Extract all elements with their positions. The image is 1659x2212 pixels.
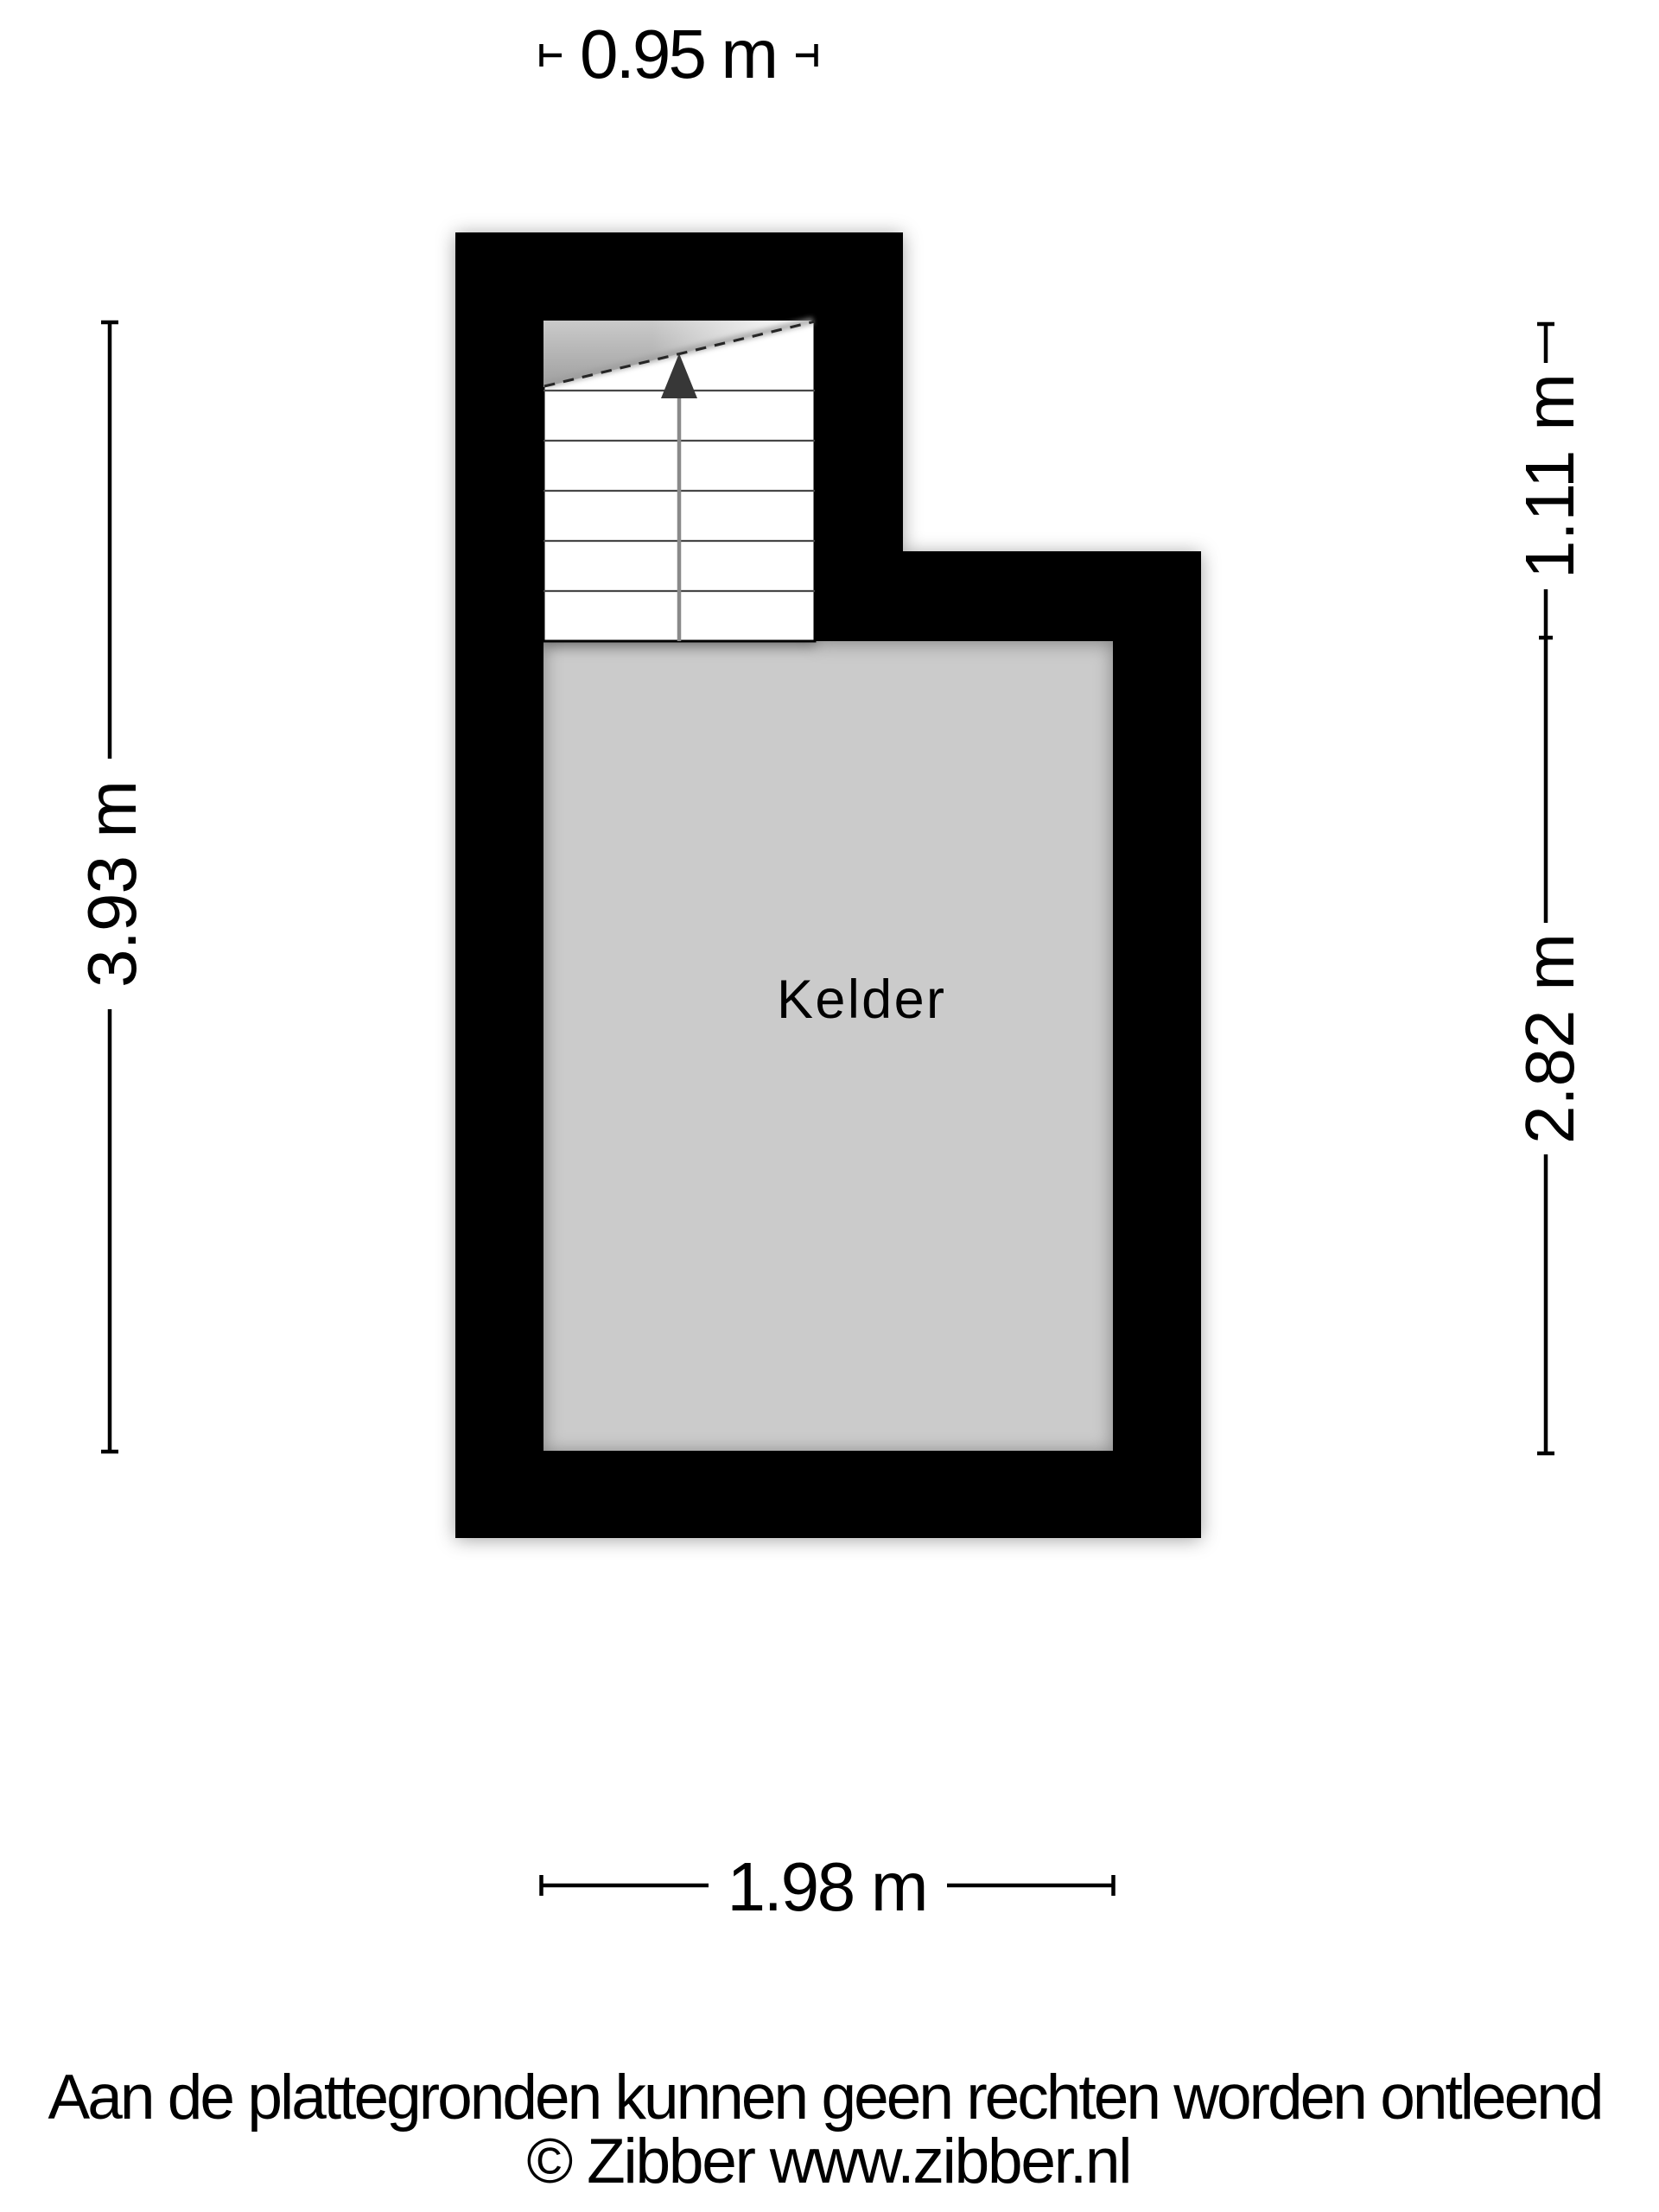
svg-text:1.11 m: 1.11 m bbox=[1511, 373, 1588, 579]
svg-text:© Zibber www.zibber.nl: © Zibber www.zibber.nl bbox=[527, 2126, 1133, 2196]
svg-text:3.93 m: 3.93 m bbox=[73, 780, 150, 988]
svg-text:1.98 m: 1.98 m bbox=[728, 1848, 929, 1925]
svg-text:2.82 m: 2.82 m bbox=[1511, 933, 1588, 1144]
svg-text:0.95 m: 0.95 m bbox=[580, 16, 779, 92]
svg-text:Aan de plattegronden kunnen ge: Aan de plattegronden kunnen geen rechten… bbox=[48, 2063, 1605, 2133]
